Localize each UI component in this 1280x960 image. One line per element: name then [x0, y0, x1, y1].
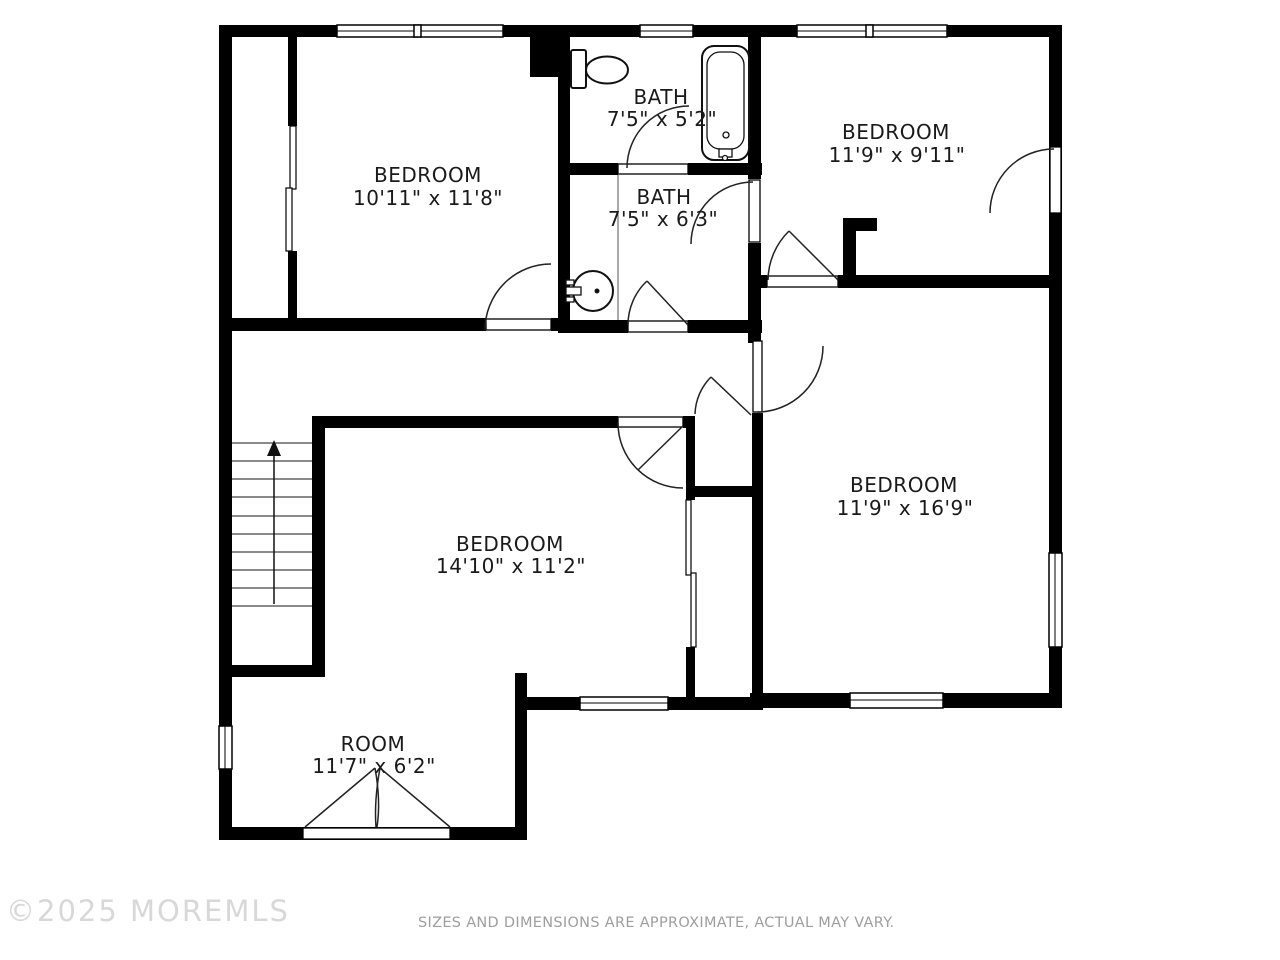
room-label-dims: 11'9" x 16'9": [837, 496, 974, 520]
room-label-dims: 7'5" x 5'2": [607, 107, 717, 131]
wall: [695, 486, 752, 497]
wall: [515, 673, 527, 840]
door: [618, 417, 683, 488]
window: [640, 25, 693, 37]
chimney: [530, 37, 570, 77]
window: [337, 25, 503, 37]
watermark: ©2025 MOREMLS: [6, 894, 290, 928]
door: [628, 281, 688, 332]
wall: [558, 163, 618, 175]
room-label-name: BEDROOM: [842, 120, 950, 144]
wall: [219, 25, 232, 840]
window: [1049, 553, 1062, 647]
room-label-name: BEDROOM: [374, 163, 482, 187]
floorplan-canvas: BEDROOM 10'11" x 11'8" BATH 7'5" x 5'2" …: [0, 0, 1280, 960]
sink-icon: [566, 271, 613, 311]
sliding-closet-doors: [686, 500, 696, 647]
wall: [748, 275, 767, 288]
wall: [752, 413, 763, 697]
wall: [558, 320, 628, 333]
door: [767, 231, 838, 287]
disclaimer-text: SIZES AND DIMENSIONS ARE APPROXIMATE, AC…: [418, 915, 894, 931]
door: [485, 264, 551, 330]
window: [580, 697, 668, 710]
room-label-dims: 11'9" x 9'11": [829, 143, 966, 167]
room-label-name: BEDROOM: [850, 473, 958, 497]
bathtub-icon: [702, 46, 749, 161]
stairs-up-arrow-icon: [267, 440, 281, 604]
window: [850, 693, 943, 708]
floorplan-page: BEDROOM 10'11" x 11'8" BATH 7'5" x 5'2" …: [0, 0, 1280, 960]
room-label-name: BATH: [633, 85, 688, 109]
wall: [288, 37, 297, 126]
room-label-name: BATH: [636, 185, 691, 209]
toilet-icon: [571, 50, 628, 88]
wall: [312, 416, 618, 428]
door: [695, 377, 751, 415]
window: [219, 726, 232, 769]
room-labels: BEDROOM 10'11" x 11'8" BATH 7'5" x 5'2" …: [312, 85, 973, 778]
room-label-name: BEDROOM: [456, 532, 564, 556]
closet-wall: [843, 218, 877, 231]
door: [753, 341, 823, 412]
wall: [688, 320, 762, 333]
wall: [288, 251, 297, 318]
wall: [219, 665, 325, 677]
wall: [219, 318, 486, 331]
room-label-dims: 10'11" x 11'8": [353, 186, 503, 210]
wall: [686, 416, 695, 500]
wall: [838, 275, 1062, 288]
sliding-closet-doors: [286, 126, 296, 251]
french-doors: [303, 768, 450, 839]
door: [990, 147, 1061, 213]
room-label-dims: 11'7" x 6'2": [312, 754, 436, 778]
room-label-dims: 14'10" x 11'2": [436, 554, 586, 578]
room-label-name: ROOM: [341, 732, 406, 756]
stairs: [232, 440, 312, 606]
room-label-dims: 7'5" x 6'3": [608, 207, 718, 231]
wall: [312, 416, 325, 677]
window: [797, 25, 947, 37]
